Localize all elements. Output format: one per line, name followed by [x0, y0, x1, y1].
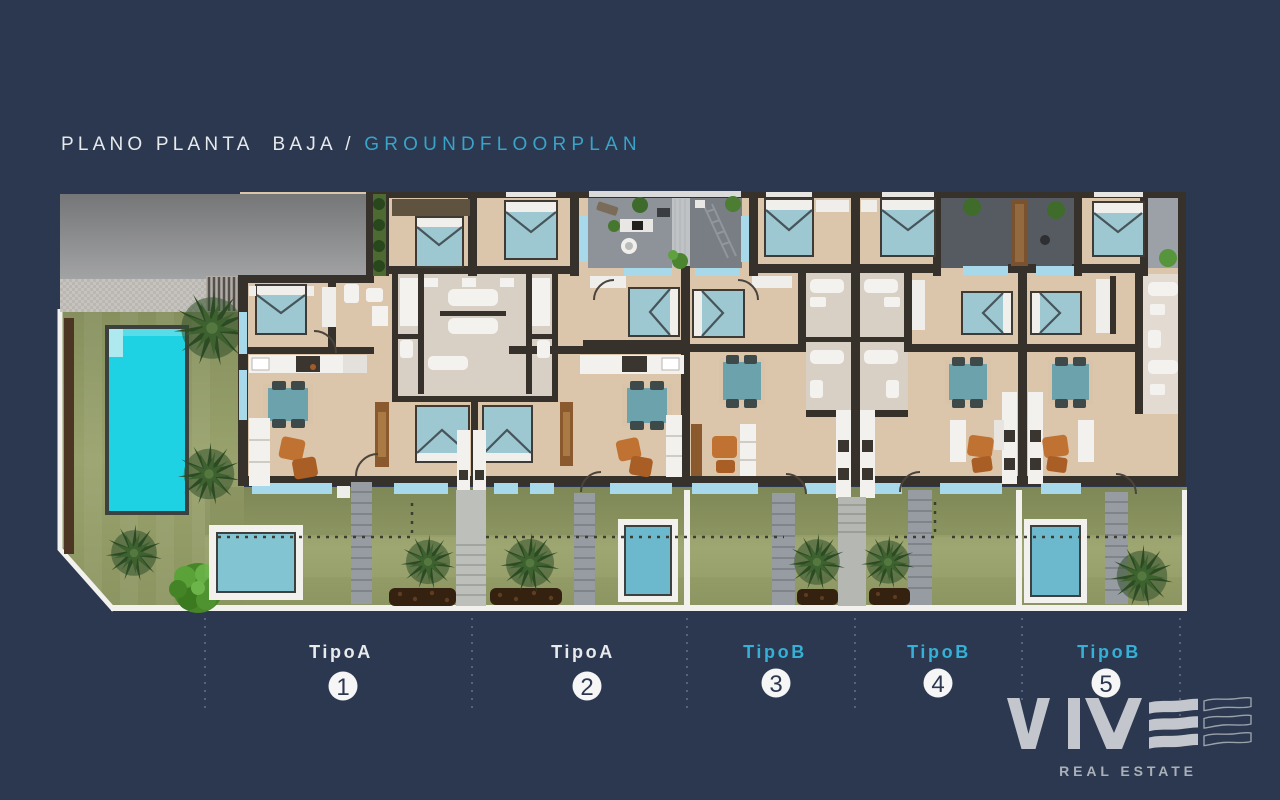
svg-text:2: 2 — [580, 674, 593, 701]
svg-text:TipoB: TipoB — [1077, 642, 1141, 662]
svg-text:TipoA: TipoA — [309, 642, 373, 662]
svg-text:REAL ESTATE: REAL ESTATE — [1059, 763, 1197, 779]
svg-text:4: 4 — [931, 671, 944, 698]
svg-text:TipoB: TipoB — [907, 642, 971, 662]
svg-text:PLANO PLANTA BAJA / GROUNDFLO: PLANO PLANTA BAJA / GROUNDFLOORPLAN — [61, 134, 642, 155]
svg-text:1: 1 — [336, 674, 349, 701]
svg-text:TipoB: TipoB — [743, 642, 807, 662]
svg-text:5: 5 — [1099, 671, 1112, 698]
svg-text:TipoA: TipoA — [551, 642, 615, 662]
svg-text:3: 3 — [769, 671, 782, 698]
